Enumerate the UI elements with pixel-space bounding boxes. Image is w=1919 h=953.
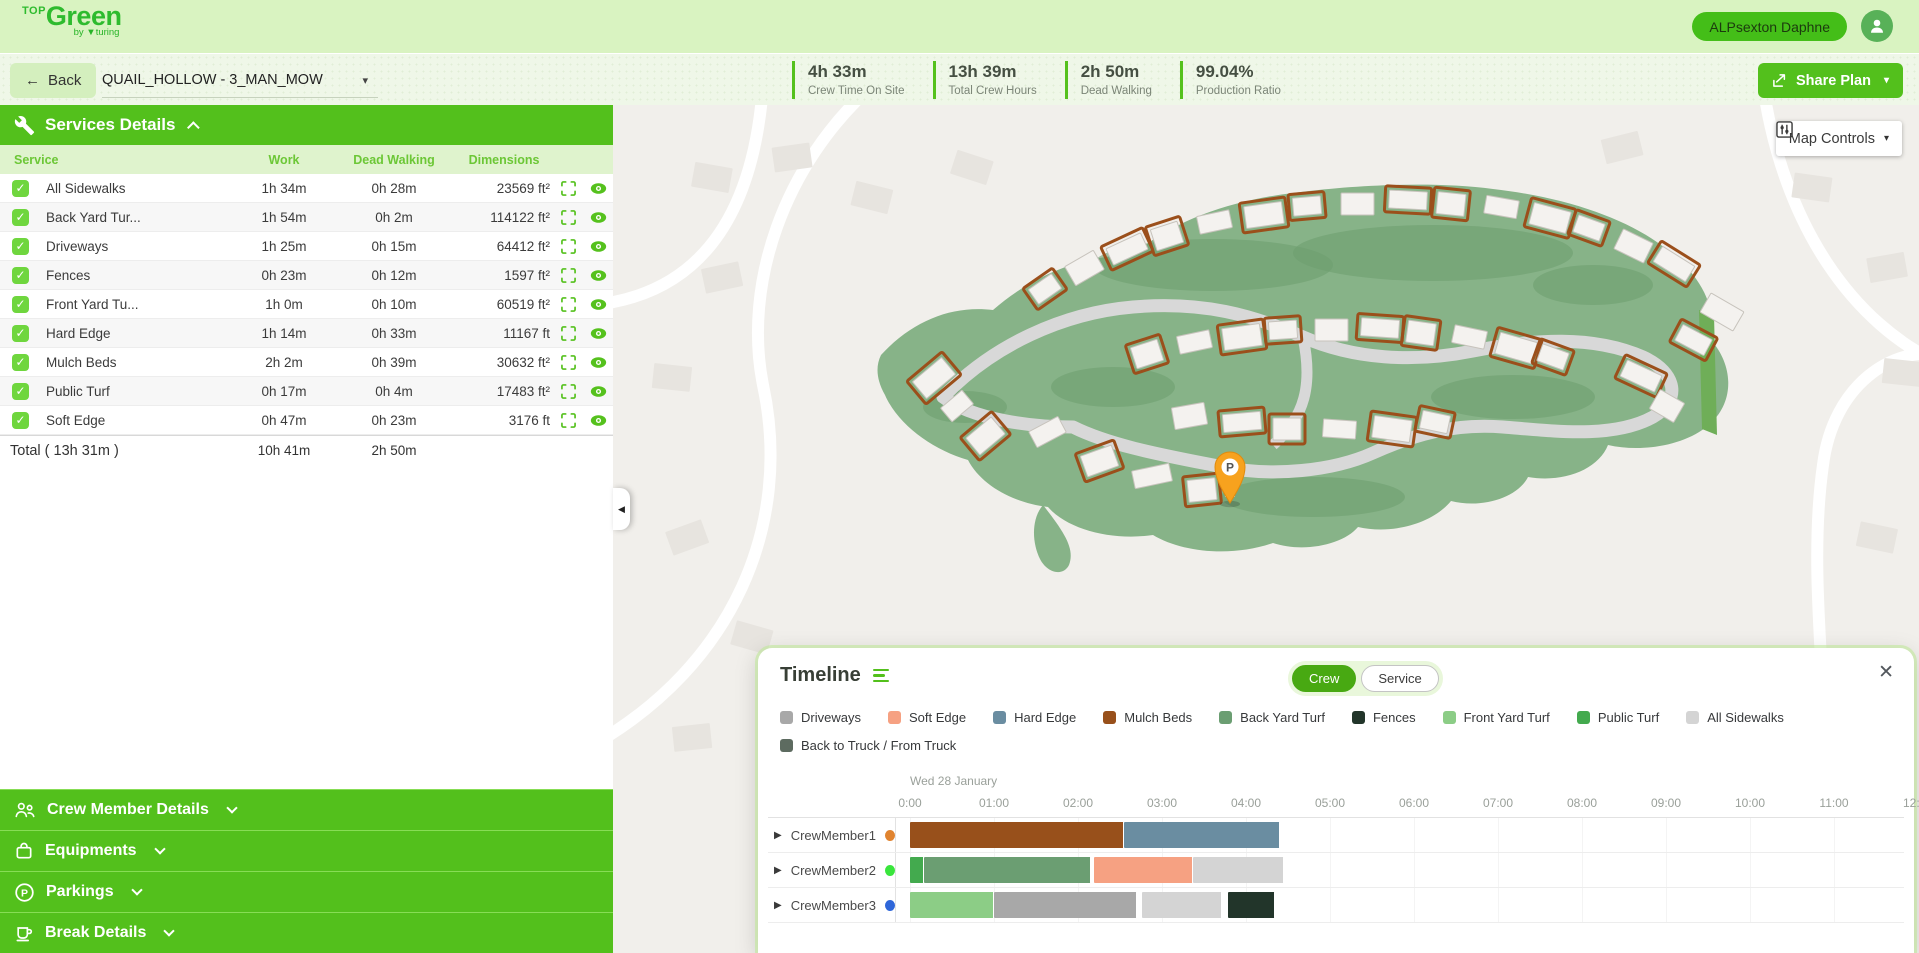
service-row: ✓Fences0h 23m0h 12m1597 ft² (0, 261, 613, 290)
legend-item: Hard Edge (993, 710, 1076, 725)
legend-label: Hard Edge (1014, 710, 1076, 725)
time-tick: 11:00 (1819, 796, 1848, 810)
service-dead-walking: 0h 33m (332, 326, 456, 341)
crew-color-dot (885, 865, 895, 876)
zoom-to-service-icon[interactable] (552, 239, 584, 254)
services-table-body: ✓All Sidewalks1h 34m0h 28m23569 ft²✓Back… (0, 174, 613, 435)
legend-label: Mulch Beds (1124, 710, 1192, 725)
service-checkbox[interactable]: ✓ (12, 238, 29, 255)
legend-item: Front Yard Turf (1443, 710, 1550, 725)
time-tick: 12:00 (1903, 796, 1919, 810)
logo-main-text: Green (46, 3, 122, 30)
chevron-down-icon: ▾ (1884, 133, 1889, 144)
service-row: ✓Driveways1h 25m0h 15m64412 ft² (0, 232, 613, 261)
legend-item: Mulch Beds (1103, 710, 1192, 725)
timeline-bar-public-turf[interactable] (910, 857, 924, 883)
close-icon[interactable]: ✕ (1878, 661, 1894, 684)
brand-logo: TOP Green by ▼turing (22, 3, 121, 38)
timeline-title: Timeline (780, 664, 861, 687)
section-crew-member-details[interactable]: Crew Member Details (0, 789, 613, 830)
plan-toolbar: ← Back QUAIL_HOLLOW - 3_MAN_MOW ▾ 4h 33m… (0, 53, 1919, 105)
zoom-to-service-icon[interactable] (552, 355, 584, 370)
section-parkings[interactable]: P Parkings (0, 871, 613, 912)
timeline-track (896, 888, 1904, 922)
service-row: ✓All Sidewalks1h 34m0h 28m23569 ft² (0, 174, 613, 203)
legend-label: Back to Truck / From Truck (801, 738, 956, 753)
legend-label: Public Turf (1598, 710, 1659, 725)
time-tick: 02:00 (1063, 796, 1093, 810)
legend-swatch (1443, 711, 1456, 724)
timeline-bar-front-yard-turf[interactable] (910, 892, 994, 918)
app-root: TOP Green by ▼turing ALPsexton Daphne ← … (0, 0, 1919, 953)
timeline-legend-row1: DrivewaysSoft EdgeHard EdgeMulch BedsBac… (780, 710, 1811, 725)
service-work: 0h 47m (236, 413, 332, 428)
legend-item: All Sidewalks (1686, 710, 1784, 725)
avatar[interactable] (1861, 10, 1893, 42)
time-tick: 07:00 (1483, 796, 1513, 810)
legend-label: Soft Edge (909, 710, 966, 725)
service-dead-walking: 0h 15m (332, 239, 456, 254)
legend-item: Fences (1352, 710, 1416, 725)
crew-service-toggle: Crew Service (1288, 661, 1443, 696)
service-dead-walking: 0h 39m (332, 355, 456, 370)
service-dimensions: 23569 ft² (456, 181, 552, 196)
time-tick: 03:00 (1147, 796, 1177, 810)
service-row: ✓Back Yard Tur...1h 54m0h 2m114122 ft² (0, 203, 613, 232)
sidebar-sections: Crew Member Details Equipments P Parking… (0, 789, 613, 953)
time-tick: 04:00 (1231, 796, 1261, 810)
service-row: ✓Soft Edge0h 47m0h 23m3176 ft (0, 406, 613, 435)
legend-swatch (780, 739, 793, 752)
chevron-down-icon (154, 843, 165, 854)
details-sidebar: Services Details Service Work Dead Walki… (0, 105, 613, 953)
timeline-crew-row: ▶CrewMember3 (768, 888, 1904, 923)
crew-member-name: CrewMember2 (791, 863, 876, 878)
service-dimensions: 11167 ft (456, 326, 552, 341)
services-details-header[interactable]: Services Details (0, 105, 613, 145)
turing-logo: ▼turing (86, 27, 119, 38)
time-tick: 0:00 (898, 796, 921, 810)
share-plan-button[interactable]: Share Plan ▾ (1758, 63, 1903, 98)
legend-label: Fences (1373, 710, 1416, 725)
timeline-bar-driveways[interactable] (994, 892, 1137, 918)
stat-production-ratio: 99.04% Production Ratio (1180, 54, 1309, 106)
service-name: Soft Edge (46, 413, 204, 428)
service-work: 1h 54m (236, 210, 332, 225)
legend-label: Front Yard Turf (1464, 710, 1550, 725)
service-name: Driveways (46, 239, 204, 254)
top-header: TOP Green by ▼turing ALPsexton Daphne (0, 0, 1919, 53)
service-checkbox[interactable]: ✓ (12, 296, 29, 313)
legend-label: All Sidewalks (1707, 710, 1784, 725)
time-tick: 09:00 (1651, 796, 1681, 810)
timeline-crew-row: ▶CrewMember2 (768, 853, 1904, 888)
service-work: 0h 17m (236, 384, 332, 399)
service-row: ✓Public Turf0h 17m0h 4m17483 ft² (0, 377, 613, 406)
plan-stats: 4h 33m Crew Time On Site 13h 39m Total C… (792, 54, 1309, 106)
svg-text:P: P (1226, 461, 1234, 475)
legend-swatch (780, 711, 793, 724)
time-tick: 01:00 (979, 796, 1009, 810)
service-checkbox[interactable]: ✓ (12, 267, 29, 284)
service-checkbox[interactable]: ✓ (12, 412, 29, 429)
chevron-down-icon: ▾ (362, 74, 368, 87)
service-checkbox[interactable]: ✓ (12, 180, 29, 197)
service-dimensions: 3176 ft (456, 413, 552, 428)
visibility-eye-icon[interactable] (584, 269, 613, 282)
wrench-icon (14, 115, 35, 136)
legend-swatch (1352, 711, 1365, 724)
service-dead-walking: 0h 2m (332, 210, 456, 225)
time-tick: 08:00 (1567, 796, 1597, 810)
service-dead-walking: 0h 28m (332, 181, 456, 196)
parking-icon: P (14, 882, 35, 903)
timeline-track (896, 853, 1904, 887)
chevron-up-icon (187, 121, 200, 134)
timeline-bar-hard-edge[interactable] (1124, 822, 1279, 848)
service-work: 1h 34m (236, 181, 332, 196)
service-dead-walking: 0h 4m (332, 384, 456, 399)
timeline-bar-back-yard-turf[interactable] (924, 857, 1091, 883)
stat-crew-time-on-site: 4h 33m Crew Time On Site (792, 54, 933, 106)
zoom-to-service-icon[interactable] (552, 297, 584, 312)
zoom-to-service-icon[interactable] (552, 181, 584, 196)
timeline-track (896, 818, 1904, 852)
legend-item: Public Turf (1577, 710, 1659, 725)
service-name: Mulch Beds (46, 355, 204, 370)
crew-member-name: CrewMember1 (791, 828, 876, 843)
crew-color-dot (885, 900, 895, 911)
section-break-details[interactable]: Break Details (0, 912, 613, 953)
timeline-grid: Wed 28 January 0:0001:0002:0003:0004:000… (768, 770, 1904, 924)
service-checkbox[interactable]: ✓ (12, 209, 29, 226)
service-work: 1h 14m (236, 326, 332, 341)
service-name: Back Yard Tur... (46, 210, 204, 225)
service-name: Hard Edge (46, 326, 204, 341)
toggle-service-button[interactable]: Service (1361, 665, 1438, 692)
timeline-bar-all-sidewalks[interactable] (1142, 892, 1223, 918)
timeline-panel: Timeline Crew Service ✕ DrivewaysSoft Ed… (758, 648, 1914, 953)
legend-item: Back Yard Turf (1219, 710, 1325, 725)
service-name: Public Turf (46, 384, 204, 399)
service-dimensions: 60519 ft² (456, 297, 552, 312)
service-name: Fences (46, 268, 204, 283)
row-expand-icon[interactable]: ▶ (774, 830, 782, 841)
plan-selector-dropdown[interactable]: QUAIL_HOLLOW - 3_MAN_MOW ▾ (102, 63, 378, 98)
sliders-icon (1776, 121, 1793, 138)
legend-item: Back to Truck / From Truck (780, 738, 956, 753)
visibility-eye-icon[interactable] (584, 414, 613, 427)
timeline-crew-row: ▶CrewMember1 (768, 818, 1904, 853)
services-table-header: Service Work Dead Walking Dimensions (0, 145, 613, 174)
time-tick: 05:00 (1315, 796, 1345, 810)
crew-color-dot (885, 830, 895, 841)
share-icon (1772, 73, 1787, 88)
chevron-down-icon: ▾ (1884, 75, 1889, 86)
timeline-date: Wed 28 January (910, 774, 997, 788)
service-row: ✓Mulch Beds2h 2m0h 39m30632 ft² (0, 348, 613, 377)
services-details-title: Services Details (45, 115, 175, 135)
collapse-left-icon: ◀ (618, 504, 625, 515)
break-cup-icon (14, 923, 34, 943)
zoom-to-service-icon[interactable] (552, 326, 584, 341)
legend-label: Back Yard Turf (1240, 710, 1325, 725)
visibility-eye-icon[interactable] (584, 240, 613, 253)
toggle-crew-button[interactable]: Crew (1292, 665, 1356, 692)
person-icon (1868, 17, 1886, 35)
section-equipments[interactable]: Equipments (0, 830, 613, 871)
service-dead-walking: 0h 23m (332, 413, 456, 428)
back-arrow-icon: ← (25, 72, 40, 89)
crew-icon (14, 800, 36, 820)
zoom-to-service-icon[interactable] (552, 413, 584, 428)
service-dimensions: 17483 ft² (456, 384, 552, 399)
chevron-down-icon (131, 884, 142, 895)
timeline-bar-mulch-beds[interactable] (910, 822, 1124, 848)
legend-swatch (1686, 711, 1699, 724)
plan-selector-value: QUAIL_HOLLOW - 3_MAN_MOW (102, 72, 323, 88)
visibility-eye-icon[interactable] (584, 327, 613, 340)
timeline-bar-all-sidewalks[interactable] (1193, 857, 1284, 883)
zoom-to-service-icon[interactable] (552, 268, 584, 283)
service-work: 0h 23m (236, 268, 332, 283)
legend-swatch (1219, 711, 1232, 724)
service-name: All Sidewalks (46, 181, 204, 196)
legend-swatch (993, 711, 1006, 724)
user-name: ALPsexton Daphne (1709, 19, 1830, 35)
legend-swatch (1103, 711, 1116, 724)
service-dimensions: 114122 ft² (456, 210, 552, 225)
visibility-eye-icon[interactable] (584, 298, 613, 311)
legend-label: Driveways (801, 710, 861, 725)
visibility-eye-icon[interactable] (584, 356, 613, 369)
user-name-pill[interactable]: ALPsexton Daphne (1692, 12, 1847, 41)
chevron-down-icon (164, 925, 175, 936)
service-dimensions: 30632 ft² (456, 355, 552, 370)
service-work: 2h 2m (236, 355, 332, 370)
legend-item: Soft Edge (888, 710, 966, 725)
zoom-to-service-icon[interactable] (552, 384, 584, 399)
time-tick: 10:00 (1735, 796, 1765, 810)
service-checkbox[interactable]: ✓ (12, 354, 29, 371)
service-dimensions: 1597 ft² (456, 268, 552, 283)
time-tick: 06:00 (1399, 796, 1429, 810)
services-total-row: Total ( 13h 31m ) 10h 41m 2h 50m (0, 435, 613, 465)
legend-swatch (888, 711, 901, 724)
visibility-eye-icon[interactable] (584, 182, 613, 195)
chevron-down-icon (226, 802, 237, 813)
service-dead-walking: 0h 12m (332, 268, 456, 283)
legend-swatch (1577, 711, 1590, 724)
back-button[interactable]: ← Back (10, 63, 96, 98)
svg-text:P: P (21, 887, 28, 899)
stat-total-crew-hours: 13h 39m Total Crew Hours (933, 54, 1065, 106)
stat-dead-walking: 2h 50m Dead Walking (1065, 54, 1180, 106)
timeline-bar-soft-edge[interactable] (1094, 857, 1193, 883)
service-dead-walking: 0h 10m (332, 297, 456, 312)
timeline-bar-fences[interactable] (1228, 892, 1276, 918)
service-checkbox[interactable]: ✓ (12, 325, 29, 342)
map-controls-button[interactable]: Map Controls ▾ (1776, 121, 1902, 156)
row-expand-icon[interactable]: ▶ (774, 865, 782, 876)
logo-top-text: TOP (22, 6, 46, 17)
timeline-legend-row2: Back to Truck / From Truck (780, 738, 983, 753)
service-name: Front Yard Tu... (46, 297, 204, 312)
service-work: 1h 0m (236, 297, 332, 312)
timeline-menu-icon[interactable] (873, 669, 889, 683)
service-row: ✓Hard Edge1h 14m0h 33m11167 ft (0, 319, 613, 348)
legend-item: Driveways (780, 710, 861, 725)
crew-member-name: CrewMember3 (791, 898, 876, 913)
service-work: 1h 25m (236, 239, 332, 254)
service-dimensions: 64412 ft² (456, 239, 552, 254)
visibility-eye-icon[interactable] (584, 385, 613, 398)
zoom-to-service-icon[interactable] (552, 210, 584, 225)
timeline-axis: Wed 28 January 0:0001:0002:0003:0004:000… (768, 770, 1904, 818)
service-checkbox[interactable]: ✓ (12, 383, 29, 400)
row-expand-icon[interactable]: ▶ (774, 900, 782, 911)
sidebar-collapse-handle[interactable]: ◀ (613, 488, 630, 530)
service-row: ✓Front Yard Tu...1h 0m0h 10m60519 ft² (0, 290, 613, 319)
visibility-eye-icon[interactable] (584, 211, 613, 224)
equipment-bag-icon (14, 841, 34, 861)
